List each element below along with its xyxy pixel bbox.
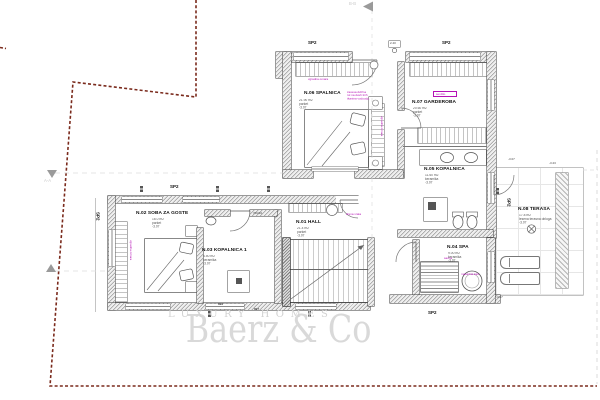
annotation-note: savna: [444, 257, 452, 260]
window-type-label: SP2: [428, 311, 437, 316]
room-info: 20.60 m2 parket -3.07: [413, 107, 427, 118]
room-info: 16.0 m2 parket -3.07: [152, 218, 164, 229]
window-type-label: SP2: [95, 212, 100, 221]
wall: [283, 238, 290, 306]
window: [126, 304, 170, 309]
lounge-chair: [500, 256, 540, 269]
room-label-spa: N.04 SPA: [447, 245, 469, 250]
double-vanity: [420, 150, 486, 165]
window-tag-marker: [496, 188, 499, 194]
wardrobe-strip: [418, 128, 486, 143]
staircase: [288, 240, 368, 302]
room-label-bedroom: N.06 SPALNICA: [304, 91, 341, 96]
window-type-label: SP2: [308, 41, 317, 46]
window: [109, 230, 115, 266]
wall-line: [403, 146, 487, 147]
room-label-bath: N.05 KOPALNICA: [424, 167, 465, 172]
wall: [283, 170, 313, 178]
room-info: 4.50 m2 keramika -3.07: [203, 255, 216, 266]
window: [488, 252, 494, 282]
room-label-terrace: N.08 TERASA: [518, 207, 550, 212]
window-type-label: SP2: [170, 185, 179, 190]
room-label-wardrobe: N.07 GARDEROBA: [412, 100, 456, 105]
window-type-label: SP2: [442, 41, 451, 46]
bed-master: [305, 110, 368, 167]
floor-plan-canvas: SP2 SP2 SP2 SP2 SP2 SP2 A-A B-B N.01 HAL…: [0, 0, 600, 400]
sauna: [421, 262, 458, 292]
wall: [413, 240, 419, 298]
room-info: 21.90 m2 parket -3.07: [299, 99, 313, 110]
wall: [398, 62, 404, 110]
window-tag-marker: [140, 186, 143, 192]
annotation-note: drsna vrata: [346, 213, 361, 216]
pocket-door: [312, 167, 358, 171]
window: [410, 53, 480, 60]
stair-landing-line: [288, 269, 368, 270]
nightstand: [369, 97, 382, 109]
room-info: 11.60 m2 keramika -3.07: [425, 174, 439, 185]
room-info: 17.8 m2 lesena terasna obloga -3.07: [519, 214, 551, 225]
annotation-note: masažna kad: [461, 273, 479, 276]
nightstand: [186, 226, 197, 236]
wall: [398, 230, 493, 237]
lounge-chair: [500, 272, 540, 285]
annotation-box: senčilo: [433, 91, 457, 97]
room-label-hall: N.01 HALL: [296, 220, 321, 225]
nightstand: [186, 282, 197, 292]
annotation-note: zavesa dvižna rol na dveh tirih tkanina …: [347, 91, 370, 101]
window: [183, 197, 219, 202]
annotation-note: vgradna omara: [308, 78, 328, 81]
window-tag-marker: [216, 186, 219, 192]
annotation-note: vgradna omara: [380, 116, 383, 136]
section-label-aa: A-A: [44, 179, 51, 183]
window-tag-marker: [267, 186, 270, 192]
wall: [355, 170, 403, 178]
wall: [390, 295, 500, 303]
entry-flag: 2.40: [389, 41, 400, 47]
wall: [283, 52, 291, 178]
window: [488, 80, 494, 110]
terrace-planter: [556, 173, 568, 288]
window: [122, 197, 162, 202]
wall: [275, 210, 281, 303]
elevation-mark: -3.07: [508, 158, 515, 161]
wall: [368, 238, 374, 306]
elevation-mark: -3.67: [496, 296, 503, 299]
nightstand: [369, 157, 382, 169]
window: [294, 53, 348, 60]
annotation-note: vgradna omara: [129, 240, 132, 260]
door-opening: [336, 196, 359, 203]
hall-cabinet: [289, 204, 342, 212]
room-info: 21.4 m2 parket -3.07: [297, 227, 309, 238]
closet-strip: [296, 63, 372, 76]
shower-drain: [428, 202, 436, 210]
section-label-bb: B-B: [349, 2, 356, 6]
room-label-guest: N.02 SOBA ZA GOSTE: [136, 211, 188, 216]
door-size-tag: 70/210: [253, 212, 262, 215]
closet-strip: [410, 63, 487, 76]
elevation-mark: -3.23: [549, 162, 556, 165]
window-type-label: SP2: [506, 198, 511, 207]
dimension-text: 899: [218, 303, 223, 306]
wall: [205, 210, 230, 216]
watermark-tagline: LUXURY HOMES: [168, 309, 334, 320]
room-label-bath1: N.03 KOPALNICA 1: [202, 248, 247, 253]
shower-drain: [236, 278, 242, 284]
terrace-door: [488, 173, 494, 203]
guest-closet: [114, 222, 127, 302]
